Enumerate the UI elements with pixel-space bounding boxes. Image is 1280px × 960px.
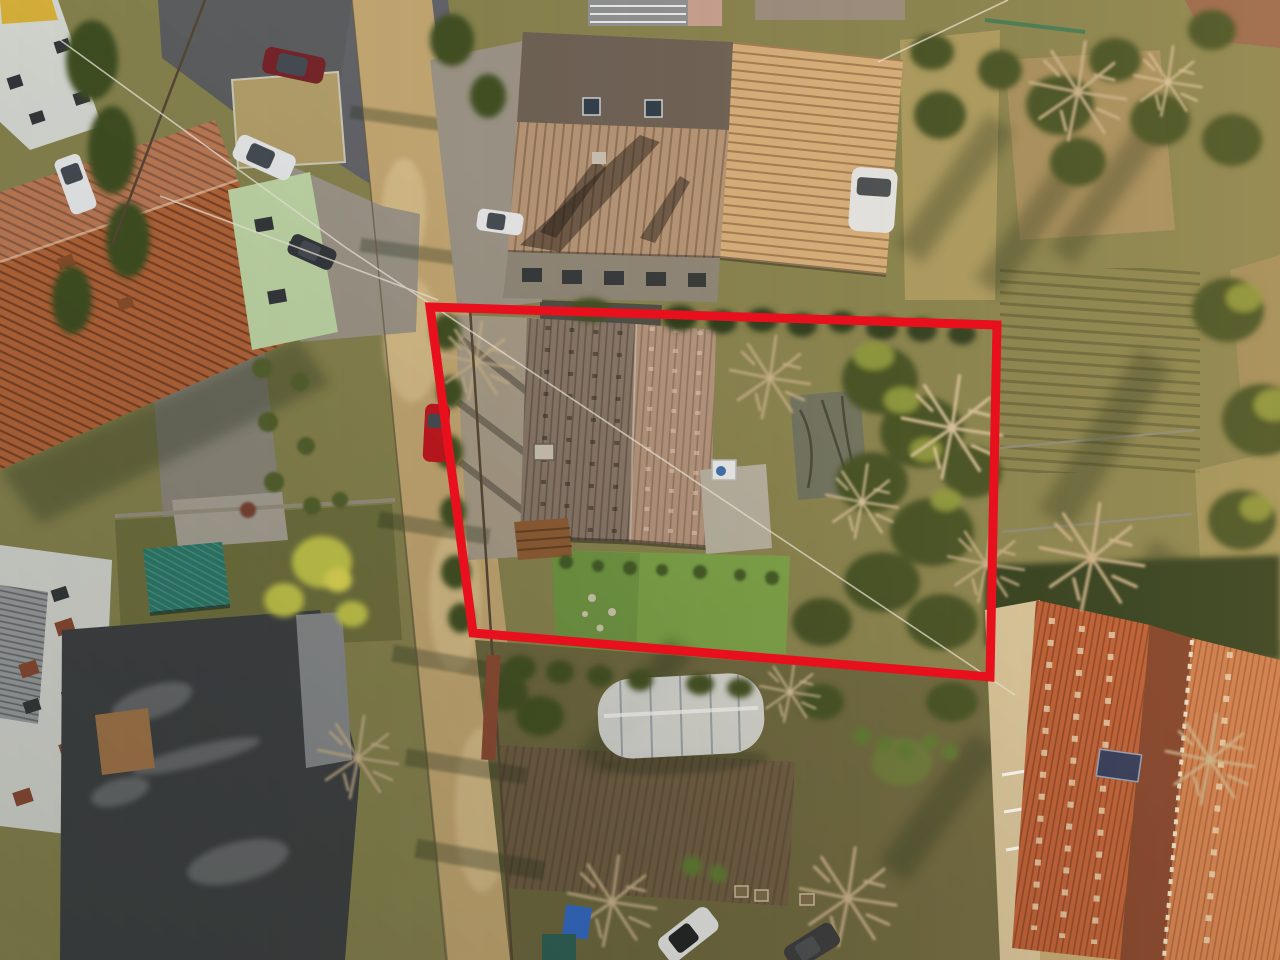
aerial-photo <box>0 0 1280 960</box>
cool-shade-overlay <box>0 0 1280 960</box>
